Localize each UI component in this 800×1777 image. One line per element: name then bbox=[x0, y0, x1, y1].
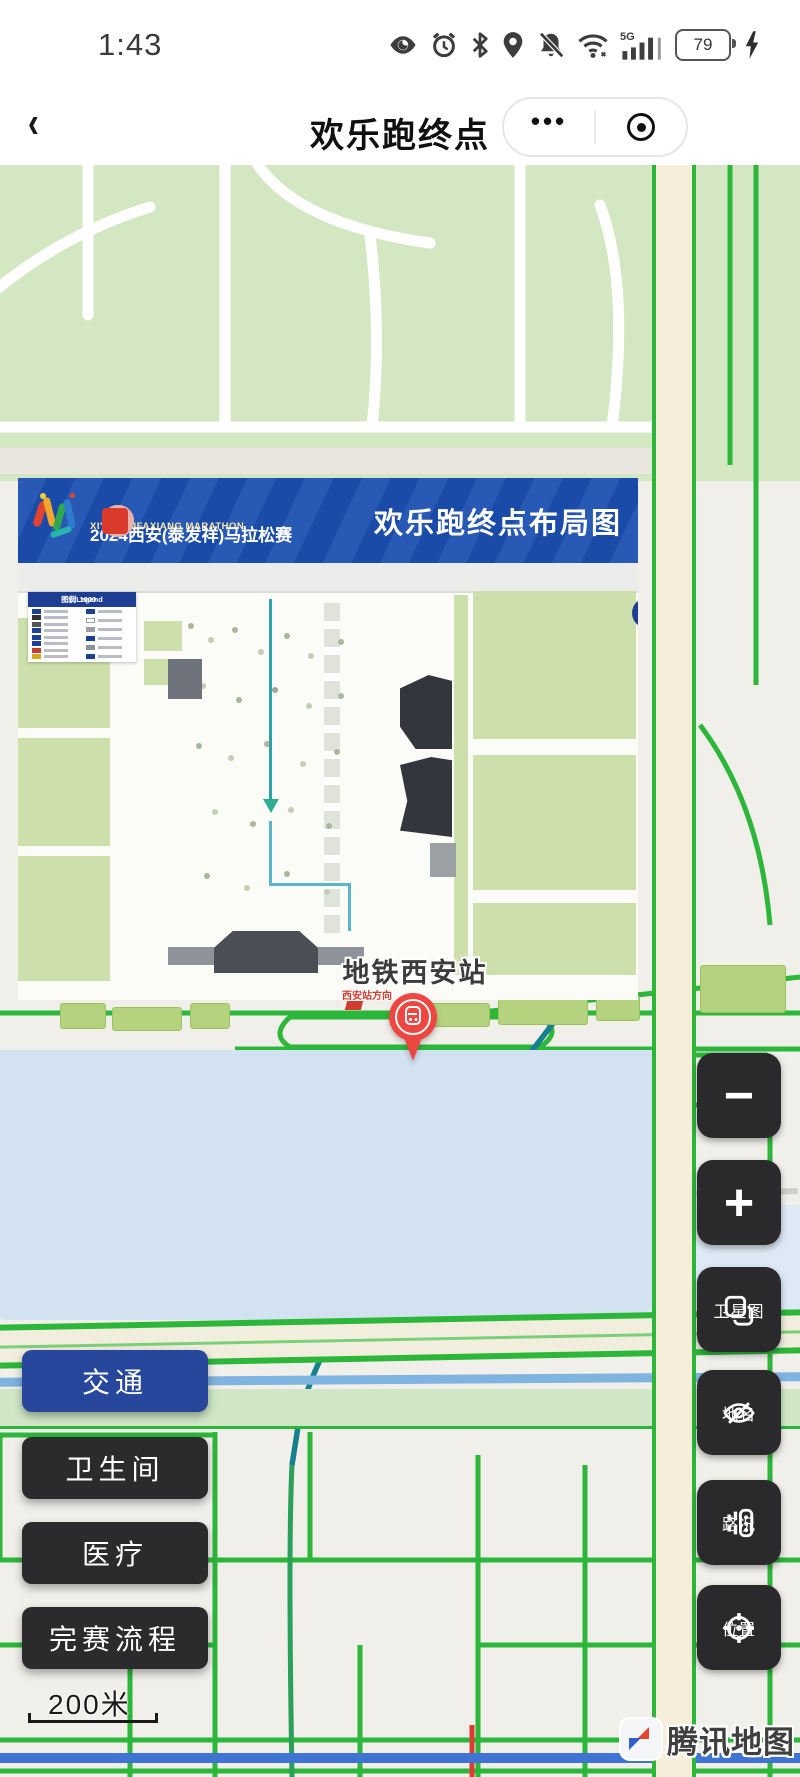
map-attribution: 腾讯地图 bbox=[560, 1717, 795, 1761]
legend-scale: 1：1000 bbox=[68, 594, 96, 605]
wifi-icon bbox=[577, 30, 609, 60]
legend-row bbox=[86, 618, 132, 623]
map-control-路况[interactable]: 路况 bbox=[697, 1480, 781, 1565]
legend-row bbox=[32, 622, 78, 627]
legend-row bbox=[86, 636, 132, 641]
metro-station-pin[interactable] bbox=[388, 993, 438, 1065]
minus-icon: − bbox=[724, 1076, 754, 1116]
legend-row bbox=[32, 648, 78, 653]
battery-icon: 79 bbox=[675, 29, 731, 61]
north-arrow-icon: N bbox=[630, 575, 638, 628]
more-menu-button[interactable]: ••• bbox=[504, 99, 594, 155]
plus-icon: + bbox=[724, 1183, 754, 1223]
map-control-位置[interactable]: 位置 bbox=[697, 1585, 781, 1670]
clock: 1:43 bbox=[98, 27, 162, 63]
tencent-maps-logo-icon bbox=[621, 1719, 661, 1759]
app-screen: 1:43 5G 79 ‹ 欢乐跑终点 ••• bbox=[0, 0, 800, 1777]
station-direction-label: 西安站方向 bbox=[342, 987, 392, 1002]
train-icon bbox=[405, 1006, 421, 1025]
station-direction-flag bbox=[345, 1001, 363, 1010]
map-control-plus[interactable]: + bbox=[697, 1160, 781, 1245]
site-plan-image: 图例Legend 1：1000 N bbox=[18, 563, 638, 1000]
filter-button-医疗[interactable]: 医疗 bbox=[22, 1522, 208, 1584]
legend-row bbox=[32, 641, 78, 646]
eye-icon bbox=[388, 30, 418, 60]
map-control-地名[interactable]: 地名 bbox=[697, 1370, 781, 1455]
marathon-logo-icon bbox=[30, 493, 82, 549]
control-label: 卫星图 bbox=[713, 1298, 764, 1322]
status-icons: 5G 79 bbox=[388, 29, 762, 61]
site-plan-legend: 图例Legend 1：1000 bbox=[28, 592, 136, 662]
close-minimize-button[interactable] bbox=[596, 99, 686, 155]
legend-row bbox=[86, 609, 132, 614]
signal-icon: 5G bbox=[620, 29, 664, 61]
map-canvas[interactable]: 2024西安(泰发祥)马拉松赛 XI'AN TAIFAXIANG MARATHO… bbox=[0, 165, 800, 1777]
map-control-minus[interactable]: − bbox=[697, 1053, 781, 1138]
miniprogram-capsule: ••• bbox=[502, 97, 688, 157]
legend-row bbox=[86, 654, 132, 659]
target-circle-icon bbox=[627, 113, 655, 141]
attribution-text: 腾讯地图 bbox=[667, 1717, 795, 1762]
svg-text:5G: 5G bbox=[620, 31, 635, 43]
filter-button-交通[interactable]: 交通 bbox=[22, 1350, 208, 1412]
more-dots-icon: ••• bbox=[531, 106, 567, 149]
banner-layout-title: 欢乐跑终点布局图 bbox=[374, 500, 626, 542]
control-label: 地名 bbox=[722, 1401, 756, 1425]
location-icon bbox=[501, 31, 525, 59]
event-banner: 2024西安(泰发祥)马拉松赛 XI'AN TAIFAXIANG MARATHO… bbox=[18, 478, 638, 563]
status-bar: 1:43 5G 79 bbox=[0, 0, 800, 90]
battery-percent: 79 bbox=[694, 35, 713, 55]
sponsor-logo-icon bbox=[102, 508, 128, 534]
map-control-卫星图[interactable]: 卫星图 bbox=[697, 1267, 781, 1352]
mute-bell-icon bbox=[536, 30, 566, 60]
station-name-label: 地铁西安站 bbox=[295, 951, 535, 990]
legend-row bbox=[86, 645, 132, 650]
filter-button-卫生间[interactable]: 卫生间 bbox=[22, 1437, 208, 1499]
scale-bar bbox=[28, 1713, 158, 1723]
control-label: 位置 bbox=[722, 1616, 756, 1640]
flash-icon bbox=[742, 30, 762, 60]
legend-row bbox=[86, 627, 132, 632]
legend-row bbox=[32, 654, 78, 659]
legend-row bbox=[32, 609, 78, 614]
filter-button-完赛流程[interactable]: 完赛流程 bbox=[22, 1607, 208, 1669]
legend-row bbox=[32, 628, 78, 633]
alarm-icon bbox=[429, 30, 459, 60]
control-label: 路况 bbox=[722, 1511, 756, 1535]
legend-row bbox=[32, 615, 78, 620]
nav-bar: ‹ 欢乐跑终点 ••• bbox=[0, 90, 800, 165]
bluetooth-icon bbox=[470, 30, 490, 60]
legend-row bbox=[32, 635, 78, 640]
